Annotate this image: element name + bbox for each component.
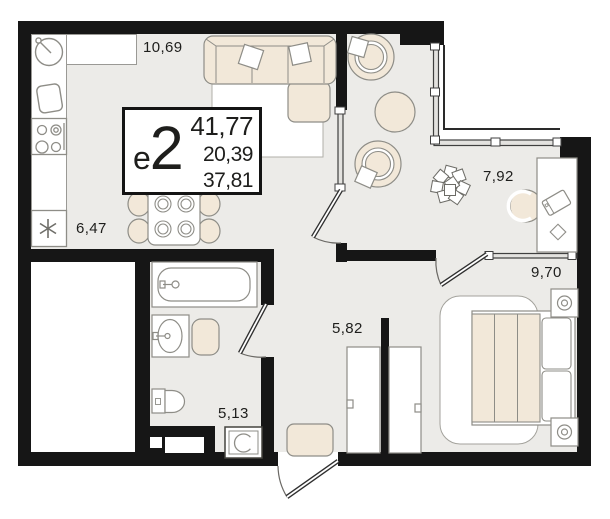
washing-machine-icon [225,427,262,458]
doormat [287,424,333,456]
unit-type-letter: е [133,142,150,174]
window-glazing [431,43,562,146]
fridge-asterisk-icon [32,211,67,247]
sink-icon [36,38,63,66]
cutting-board-icon [36,83,63,113]
armchair [355,141,401,188]
floor-plan-drawing [0,0,610,519]
room-area-label-bathroom: 5,13 [218,406,249,421]
unit-area-secondary: 37,81 [190,170,253,191]
room-area-label-lounge: 7,92 [483,169,514,184]
stove-icon [32,119,67,155]
pouf [375,92,415,132]
nightstand-lamp-icon [551,289,578,317]
unit-type-number: 2 [150,118,182,179]
pillow [289,43,312,66]
adjacent-room [31,262,135,452]
pillow [542,318,571,369]
pillow [542,371,571,421]
unit-area-living: 20,39 [190,144,253,165]
unit-info-card: е2 41,77 20,39 37,81 [122,107,262,195]
bath-mat [192,319,219,355]
room-area-label-bedroom: 9,70 [531,265,562,280]
bed [472,311,575,425]
room-area-label-kitchen-niche: 6,47 [76,221,107,236]
unit-type: е2 [133,118,182,179]
unit-areas: 41,77 20,39 37,81 [190,113,253,191]
armchair [347,34,394,80]
unit-area-total: 41,77 [190,113,253,139]
nightstand-lamp-icon [551,418,578,446]
toilet-icon [152,389,184,413]
washbasin-icon [152,315,189,357]
door-swing-entrance [278,461,338,497]
room-area-label-kitchen-living: 10,69 [143,40,183,55]
room-area-label-hallway: 5,82 [332,321,363,336]
floor-plan: 10,69 6,47 7,92 9,70 5,82 5,13 е2 41,77 … [0,0,610,519]
bathtub-icon [152,262,257,307]
